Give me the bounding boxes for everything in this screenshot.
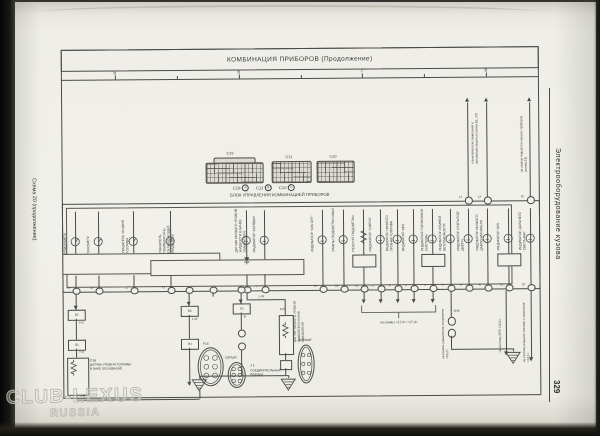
terminal-circle [466,284,474,292]
lamp-symbol [408,231,418,241]
lamp-symbol [482,230,492,240]
wire-destination-label: на панель управления отопителем <15,2> [441,299,449,359]
wire-destination-label: на систему впрыска топлива и зажигания <… [521,298,530,362]
lamp-symbol [503,230,513,240]
terminal-circle [186,287,194,295]
component-label: УКАЗАТЕЛЬ УРОВНЯ ТОПЛИВА [120,209,129,253]
sidebar-rule [549,88,550,402]
arrow-down [361,299,365,303]
wire-vertical [240,312,241,329]
component-label: ДАТЧИК НИЗКОГО УРОВНЯ ЖИДКОСТИ В БАЧКЕ О… [233,208,246,252]
component-label: ИНДИКАТОР РЕМНЕЙ БЕЗОПАСНОСТИ [437,207,446,251]
component-label: ИНДИКАТОР НИЗКОГО УРОВНЯ ТОПЛИВА [384,207,393,251]
wire-destination-label: на лампы подсветки панели приборов (схем… [519,106,528,172]
legend-id: C19 [233,185,241,190]
wire-vertical [300,75,301,78]
lamp-symbol [259,232,269,242]
gauge-symbol [93,234,103,244]
wire-vertical [75,319,76,340]
pin-number: 3 [405,284,407,288]
terminal-circle [96,287,104,295]
terminal-circle [238,286,246,294]
lamp-symbol [525,230,535,240]
component-label: СОЕДИНИТЕЛЬНЫЙ РАЗЪЕМ [250,369,288,376]
terminal-circle [430,285,438,293]
component-tag: J 1 [250,363,255,367]
terminal-circle [210,286,218,294]
pin-number: 2 [389,284,391,288]
pin-number: 16 [90,287,93,291]
wire-label: W-B [454,310,460,314]
pin-number: 14 [459,195,462,199]
arrow-up [527,97,531,101]
pin-number: 19 [355,285,358,289]
wiring-diagram: КОМБИНАЦИЯ ПРИБОРОВ (Продолжение) Схема … [0,0,600,436]
component-label: ИНДИКАТОР ТОРМОЗНОЙ СИСТЕМЫ [419,207,428,251]
component-label: СПИДОМЕТР [62,210,67,254]
wire-label: B [244,315,246,319]
component-label: ИНДИКАТОР НИЗКОГО ДАВЛЕНИЯ МАСЛА [474,207,483,251]
component-tag: F15 [280,308,285,312]
terminal-circle [484,197,492,205]
wire-vertical [176,76,177,79]
component-label: УКАЗАТЕЛЬ ТЕМПЕРАТУРЫ ОХЛАЖДАЮЩЕЙ ЖИДКОС… [157,209,174,253]
lamp-symbol [445,231,455,241]
arrow-up [484,98,488,102]
component-label: ТАХОМЕТР [85,210,90,254]
diagram-title: КОМБИНАЦИЯ ПРИБОРОВ (Продолжение) [227,55,373,63]
pin-number: 5 [442,284,444,288]
connector-legend: C19A C11B C10C [233,184,295,191]
connector-box: B2 [68,310,86,321]
connector-face [297,344,315,384]
pin-number: 12 [162,286,165,290]
pin-number: 7 [256,285,258,289]
component-tag: F16 [203,342,209,346]
diagram-elements: 5678СПИДОМЕТР15ТАХОМЕТР16УКАЗАТЕЛЬ УРОВН… [0,0,598,2]
connector-box: K2 [233,303,251,314]
wire-vertical [212,292,213,297]
resistor-box [421,254,445,267]
lamp-symbol [463,231,473,241]
pin-number: 1 [372,284,374,288]
pin-number: 20 [522,283,525,287]
resistor-box [497,253,521,266]
legend-item: C19A [233,184,249,191]
wire-vertical [361,74,362,78]
cluster-bus-b [150,259,304,276]
connector-color-label: ЧЕРНЫЙ [298,338,311,342]
legend-id: C10 [279,185,287,190]
chapter-sidebar-label: Электрооборудование кузова [554,148,561,398]
arrow-down [378,299,382,303]
circled-letter-icon: C [288,184,295,191]
component-label: РЕОСТАТ ПОДСВЕТКИ [350,208,355,252]
pin-number: 10 [314,285,317,289]
resistor-box [352,254,376,267]
wire-destination-label: к выключателю зажигания и автоматам защи… [470,106,479,164]
wire-label: L-W [192,318,198,322]
terminal-circle [465,197,473,205]
wire-vertical [451,336,452,349]
pin-number: 13 [478,195,481,199]
terminal-circle [527,196,535,204]
component-label: ДАТЧИК НИЗКОГО УРОВНЯ ЖИДКОСТИ В БАЧКЕ О… [293,296,305,342]
resistor-symbol [281,322,288,338]
circled-letter-icon: A [242,184,249,191]
terminal-circle [528,284,536,292]
diode-symbol [243,251,250,259]
terminal-circle [506,284,514,292]
lamp-symbol [317,232,327,242]
connector-c10-drawing [317,161,355,183]
pin-number: 15 [67,287,70,291]
arrow-down [395,299,399,303]
wire-vertical [423,74,424,77]
component-label: ИНДИКАТОР ABS [400,207,405,251]
component-label: ИНДИКАТОР SRS [495,206,500,250]
component-label: ДАТЧИК УРОВНЯ ТОПЛИВА В БАКЕ (ОСНОВНОЙ) [90,363,134,371]
lamp-symbol [375,231,385,241]
watermark-club-lexus: CLUB-LEXUS [6,385,144,410]
lamp-symbol [338,232,348,242]
component-label: ИНДИКАТОР "O/D OFF" [309,208,314,252]
component-label: ИНДИКАТОР ОТКРЫТОЙ ДВЕРИ [455,207,464,251]
component-label: ЛАМПЫ ПОДСВЕТКИ ШКАЛ [330,208,335,252]
arrow-down [504,351,508,355]
arrow-up [465,98,469,102]
terminal-circle [378,285,386,293]
terminal-circle [320,285,328,293]
gauge-symbol [70,234,80,244]
arrow-down [430,299,434,303]
component-label: ИНДИКАТОР ЗАРЯДКИ [251,208,256,252]
connector-c11-id: C11 [286,155,293,159]
connector-c10-id: C10 [330,155,337,159]
connector-face [227,361,246,388]
scanned-manual-page: КОМБИНАЦИЯ ПРИБОРОВ (Продолжение) Схема … [0,0,600,436]
wire-vertical [485,73,486,77]
terminal-circle [411,285,419,293]
bracket [361,305,437,320]
scan-edge-bottom [0,422,600,436]
ground-symbol [280,378,296,392]
pin-number: 6 [460,284,462,288]
wire-label: Y-G [79,351,84,355]
page-number: 329 [552,380,561,393]
legend-id: C11 [256,185,263,190]
scan-edge-right [594,0,600,436]
terminal-circle [448,284,456,292]
pin-number: 18 [335,285,338,289]
terminal-circle [361,285,369,293]
pin-number: 20 [521,195,524,199]
wire-destination-label: на систему SRS <15,2> [497,298,501,352]
lamp-symbol [241,232,251,242]
connector-c11-drawing [272,161,312,183]
terminal-circle [73,287,81,295]
legend-item: C10C [279,184,295,191]
terminal-circle [485,284,493,292]
gauge-symbol [128,233,138,243]
legend-item: C11B [256,184,272,191]
wire-vertical [238,74,239,78]
component-label: ИНДИКАТОР "CHECK" [367,207,372,251]
pin-number: 4 [424,284,426,288]
connector-box: B3 [181,306,199,317]
scheme-number-label: Схема 20 (продолжение). [31,178,38,298]
pin-number: 11 [125,286,128,290]
component-label: ИНДИКАТОР ДАЛЬНЕГО СВЕТА ФАР [517,206,526,250]
pin-number: 8 [479,284,481,288]
connector-color-label: СЕРЫЙ [225,357,236,361]
gauge-symbol [165,233,175,243]
terminal-circle [341,285,349,293]
terminal-circle [395,285,403,293]
diagram-title-box: КОМБИНАЦИЯ ПРИБОРОВ (Продолжение) [61,46,539,72]
pin-number: 21 [500,283,503,287]
circled-letter-icon: B [265,184,272,191]
resistor-symbol [360,228,367,244]
wire-label: Y-G [79,322,84,326]
connector-c19-id: C19 [226,152,233,156]
watermark-russia: RUSSIA [50,406,101,419]
wire-vertical [285,353,286,360]
arrow-down [411,299,415,303]
connector-c19-drawing [206,162,264,183]
lamp-symbol [427,231,437,241]
wire-vertical [76,349,77,358]
connector-face [197,347,224,387]
wire-vertical [114,75,115,79]
terminal-circle [262,286,270,294]
wire-label: L-W [259,295,265,299]
resistor-symbol [70,360,77,376]
terminal-circle [131,287,139,295]
terminal-circle [168,287,176,295]
